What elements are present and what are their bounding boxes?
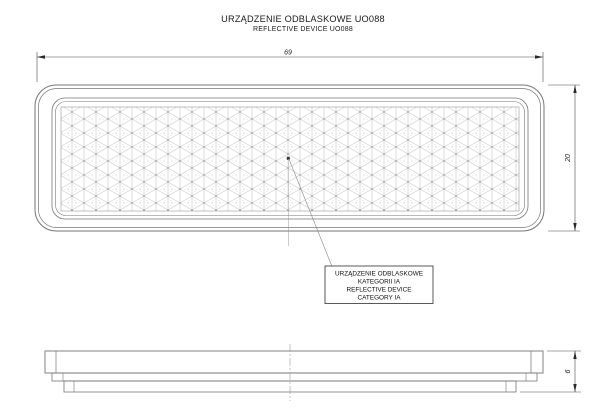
side-mid-step-endcaps <box>63 373 526 381</box>
callout-line-1: URZĄDZENIE ODBLASKOWE <box>335 271 423 278</box>
side-mid-step-outline <box>52 373 537 381</box>
drawing-title-english: REFLECTIVE DEVICE UO088 <box>253 26 353 33</box>
thickness-dimension: 6 <box>520 351 581 392</box>
thickness-dimension-value: 6 <box>565 369 572 373</box>
side-body-endcaps <box>56 351 531 373</box>
technical-drawing-sheet: URZĄDZENIE ODBLASKOWE UO088 REFLECTIVE D… <box>0 0 600 416</box>
arrow-down-icon <box>573 223 576 231</box>
arrow-up-icon <box>573 351 576 359</box>
width-dimension-value: 69 <box>284 50 292 57</box>
reflector-prism-pattern <box>61 107 519 211</box>
callout-line-3: REFLECTIVE DEVICE <box>347 287 412 294</box>
height-dimension-value: 20 <box>565 154 572 163</box>
height-dimension: 20 <box>548 85 580 231</box>
arrow-right-icon <box>535 55 543 58</box>
side-view <box>45 344 543 401</box>
width-dimension: 69 <box>37 50 543 83</box>
arrow-up-icon <box>573 85 576 93</box>
arrow-left-icon <box>37 55 45 58</box>
width-extension-lines <box>37 52 543 82</box>
callout-line-2: KATEGORII IA <box>358 279 401 286</box>
drawing-title-polish: URZĄDZENIE ODBLASKOWE UO088 <box>221 14 385 24</box>
arrow-down-icon <box>573 384 576 392</box>
side-body-outline <box>45 351 543 373</box>
reflective-device-drawing: URZĄDZENIE ODBLASKOWE UO088 REFLECTIVE D… <box>0 0 600 416</box>
front-view <box>35 85 544 246</box>
callout-line-4: CATEGORY IA <box>358 295 402 302</box>
